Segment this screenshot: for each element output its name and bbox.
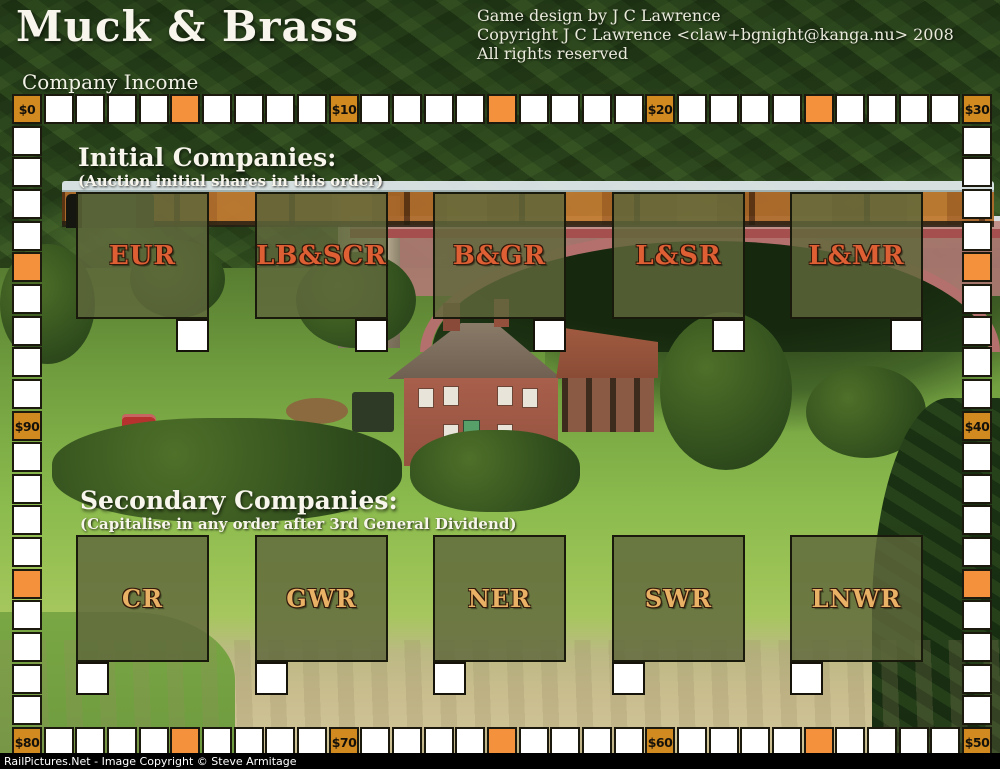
company-name-lb-scr: LB&SCR [256, 241, 387, 271]
company-name-b-gr: B&GR [453, 241, 546, 271]
company-box-eur[interactable]: EUR [76, 192, 209, 319]
company-box-l-sr[interactable]: L&SR [612, 192, 745, 319]
company-name-lnwr: LNWR [812, 584, 902, 613]
company-box-cr[interactable]: CR [76, 535, 209, 662]
share-marker-slot-l-sr[interactable] [712, 319, 745, 352]
game-board: $0$10$20$30$40$50$60$70$80$90 EURLB&SCRB… [0, 0, 1000, 769]
company-box-l-mr[interactable]: L&MR [790, 192, 923, 319]
credit-line: All rights reserved [477, 44, 954, 63]
share-marker-slot-b-gr[interactable] [533, 319, 566, 352]
company-box-lnwr[interactable]: LNWR [790, 535, 923, 662]
share-marker-slot-cr[interactable] [76, 662, 109, 695]
company-name-l-sr: L&SR [635, 241, 721, 271]
initial-companies-subheading: (Auction initial shares in this order) [78, 172, 383, 190]
credits-block: Game design by J C Lawrence Copyright J … [477, 6, 954, 63]
company-box-ner[interactable]: NER [433, 535, 566, 662]
secondary-companies-subheading: (Capitalise in any order after 3rd Gener… [80, 515, 516, 533]
company-boxes-layer: EURLB&SCRB&GRL&SRL&MRCRGWRNERSWRLNWR [0, 0, 1000, 769]
initial-companies-heading: Initial Companies: [78, 143, 336, 172]
company-box-gwr[interactable]: GWR [255, 535, 388, 662]
secondary-companies-heading: Secondary Companies: [80, 486, 398, 515]
share-marker-slot-eur[interactable] [176, 319, 209, 352]
share-marker-slot-lnwr[interactable] [790, 662, 823, 695]
company-name-cr: CR [122, 584, 163, 613]
watermark-text: RailPictures.Net - Image Copyright © Ste… [4, 755, 297, 768]
credit-line: Game design by J C Lawrence [477, 6, 954, 25]
share-marker-slot-l-mr[interactable] [890, 319, 923, 352]
company-name-swr: SWR [645, 584, 712, 613]
company-box-b-gr[interactable]: B&GR [433, 192, 566, 319]
share-marker-slot-ner[interactable] [433, 662, 466, 695]
share-marker-slot-gwr[interactable] [255, 662, 288, 695]
credit-line: Copyright J C Lawrence <claw+bgnight@kan… [477, 25, 954, 44]
share-marker-slot-lb-scr[interactable] [355, 319, 388, 352]
game-title: Muck & Brass [16, 2, 359, 51]
company-name-l-mr: L&MR [808, 241, 904, 271]
company-name-ner: NER [468, 584, 531, 613]
company-name-gwr: GWR [286, 584, 356, 613]
share-marker-slot-swr[interactable] [612, 662, 645, 695]
company-box-swr[interactable]: SWR [612, 535, 745, 662]
company-box-lb-scr[interactable]: LB&SCR [255, 192, 388, 319]
company-name-eur: EUR [109, 241, 176, 271]
watermark-bar: RailPictures.Net - Image Copyright © Ste… [0, 753, 1000, 769]
income-track-label: Company Income [22, 70, 198, 94]
